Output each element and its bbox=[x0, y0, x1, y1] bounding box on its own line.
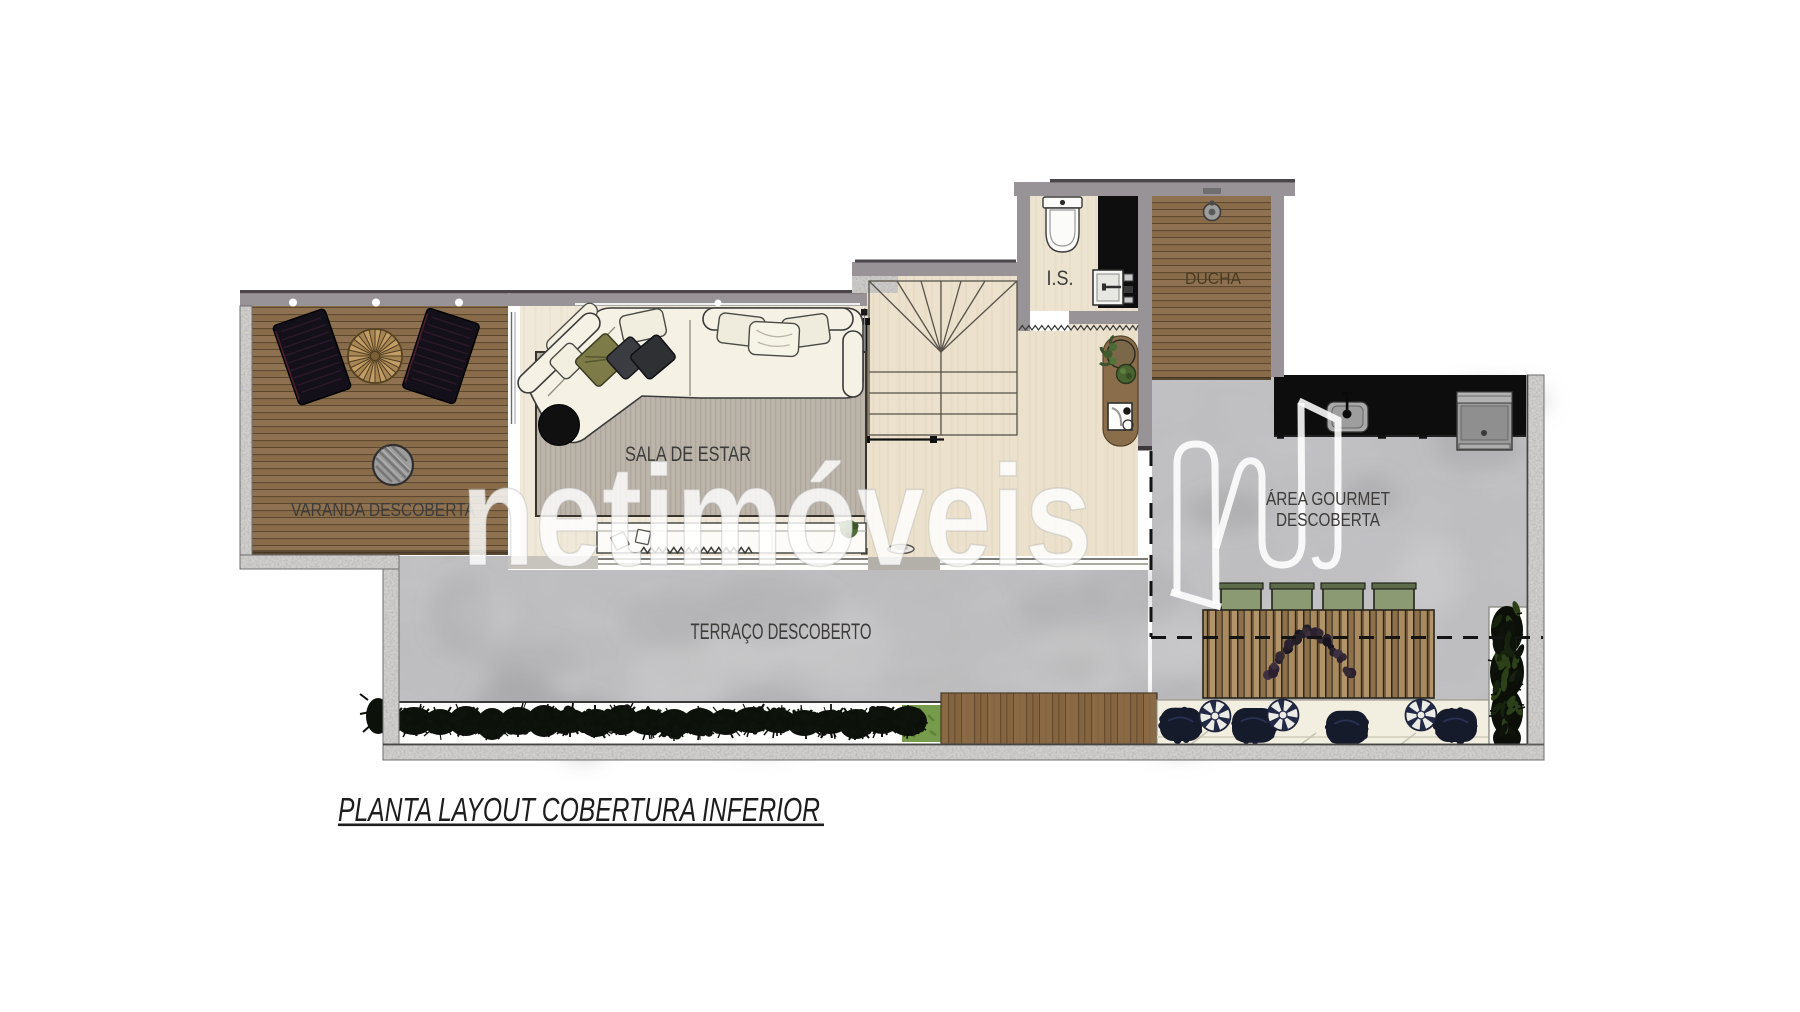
svg-text:DUCHA: DUCHA bbox=[1185, 269, 1242, 288]
svg-text:ÁREA GOURMET: ÁREA GOURMET bbox=[1266, 489, 1390, 509]
svg-text:PLANTA LAYOUT COBERTURA INFERI: PLANTA LAYOUT COBERTURA INFERIOR bbox=[338, 791, 820, 828]
svg-text:I.S.: I.S. bbox=[1047, 267, 1074, 290]
svg-text:TERRAÇO DESCOBERTO: TERRAÇO DESCOBERTO bbox=[691, 619, 872, 644]
svg-text:DESCOBERTA: DESCOBERTA bbox=[1276, 510, 1380, 530]
svg-text:VARANDA DESCOBERTA: VARANDA DESCOBERTA bbox=[291, 500, 475, 520]
svg-text:netimóveis: netimóveis bbox=[461, 437, 1092, 596]
